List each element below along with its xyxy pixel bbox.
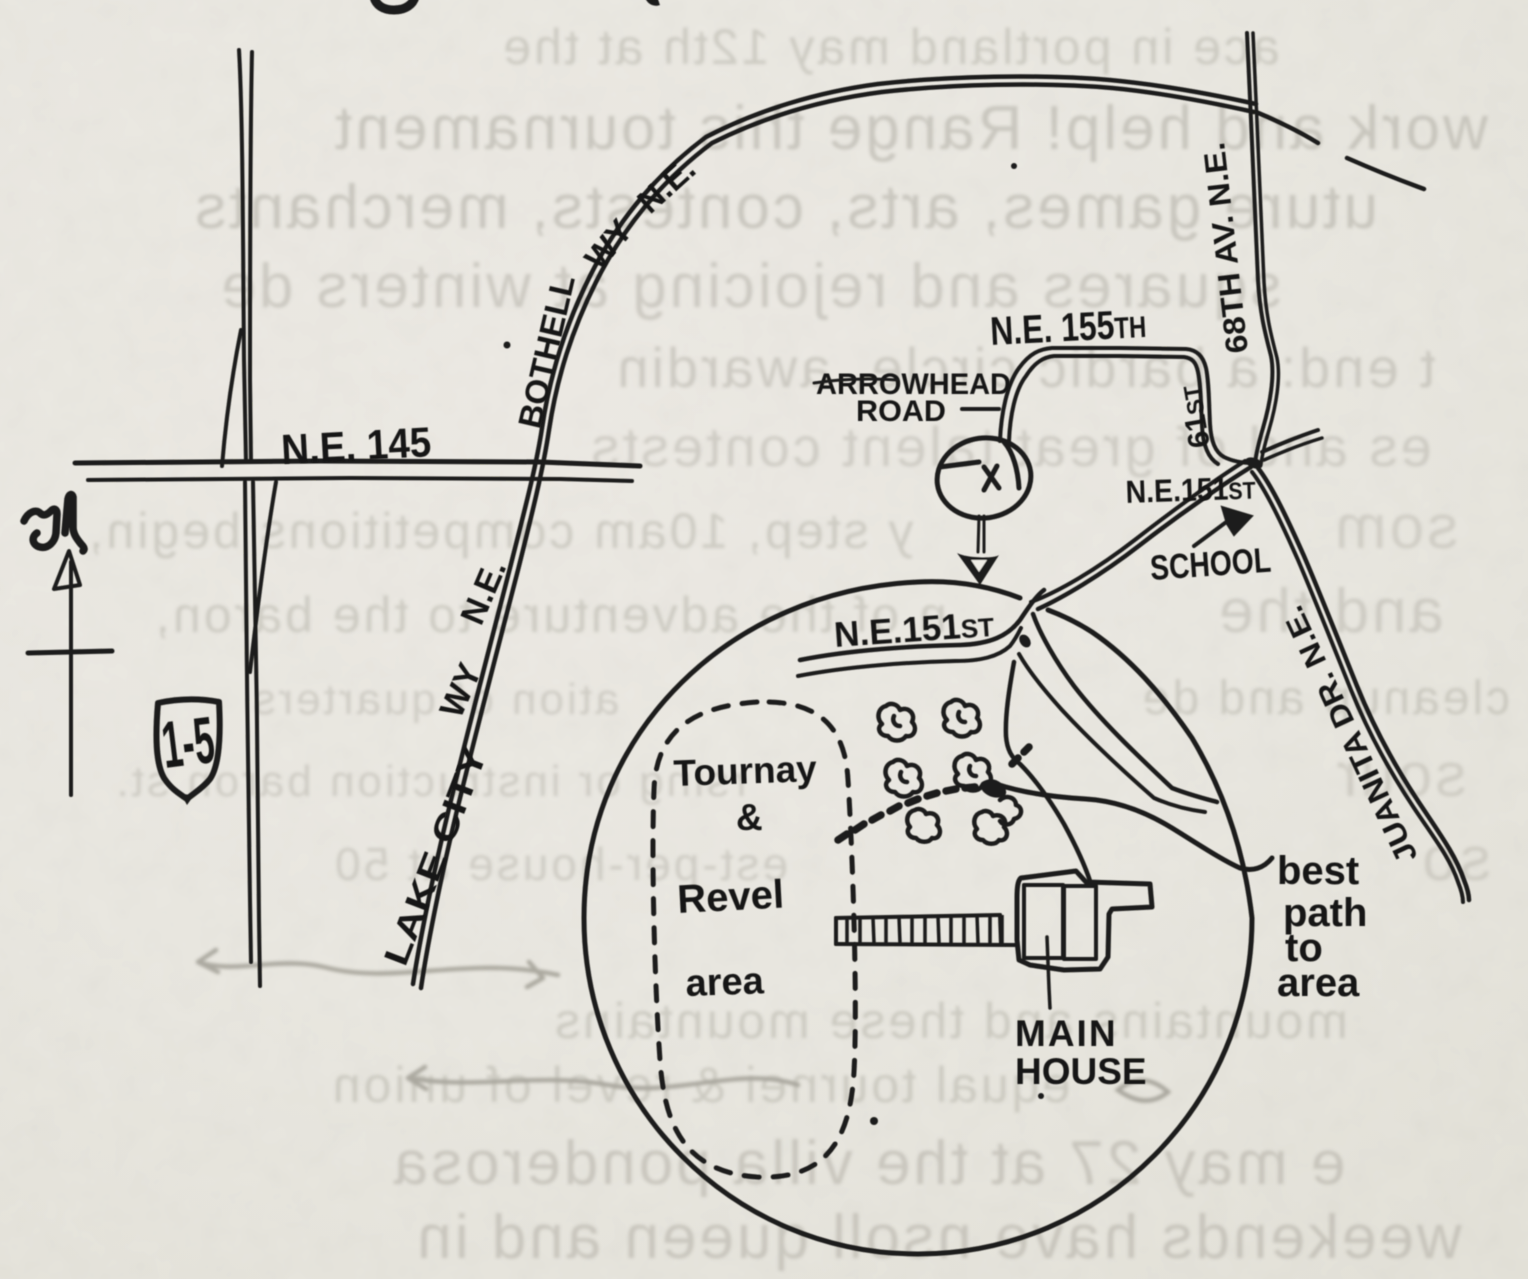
svg-text:weekends have nsoll queen and: weekends have nsoll queen and in (414, 1203, 1462, 1272)
svg-text:HOUSE: HOUSE (1015, 1051, 1147, 1092)
svg-text:ace in portland may 12th at th: ace in portland may 12th at the (500, 19, 1280, 75)
svg-text:ROAD: ROAD (856, 395, 946, 428)
svg-text:Revel: Revel (676, 872, 785, 922)
svg-text:MAIN: MAIN (1015, 1013, 1118, 1054)
svg-text:Tournay: Tournay (673, 748, 818, 794)
svg-text:squares and rejoicing at winte: squares and rejoicing at winters de (218, 252, 1281, 321)
svg-text:&: & (736, 797, 763, 838)
svg-text:e may 27 at the villa ponderos: e may 27 at the villa ponderosa (391, 1129, 1346, 1198)
svg-text:area: area (685, 960, 765, 1005)
svg-text:y step, 10am competitions begi: y step, 10am competitions begin, (87, 503, 914, 559)
svg-text:som: som (1332, 493, 1458, 562)
svg-text:best: best (1277, 849, 1359, 893)
svg-text:work and help! Range this tour: work and help! Range this tournament (332, 94, 1489, 163)
svg-text:area: area (1277, 961, 1360, 1005)
svg-text:ation of quarters: ation of quarters (251, 675, 620, 724)
svg-text:N.E. 145: N.E. 145 (280, 418, 432, 473)
svg-text:1-5: 1-5 (158, 702, 219, 782)
